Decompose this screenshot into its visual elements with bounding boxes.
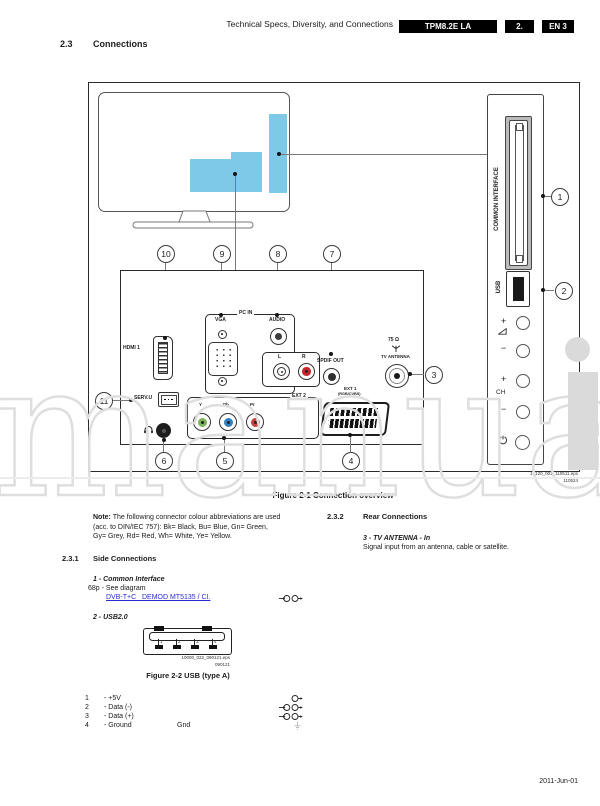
vga-label: VGA: [215, 318, 226, 323]
antenna-item-title: 3 - TV ANTENNA - In: [363, 535, 430, 542]
sec232-title: Rear Connections: [363, 513, 427, 521]
ground-icon: [293, 721, 302, 730]
antenna-icon: [391, 345, 401, 353]
pr-jack: [246, 413, 264, 431]
pin-desc: - Data (-): [104, 704, 132, 711]
scart-connector: [320, 402, 390, 436]
volume-minus-label: −: [501, 344, 506, 353]
manual-page: Technical Specs, Diversity, and Connecti…: [0, 0, 600, 806]
channel-down-button[interactable]: [516, 405, 530, 419]
section-title: Connections: [93, 40, 148, 49]
common-interface-item-text: 68p - See diagram: [88, 585, 146, 592]
common-interface-label: COMMON INTERFACE: [494, 139, 500, 259]
io-in-icon: [279, 594, 291, 603]
usb-tab: [202, 626, 212, 631]
callout-6: 6: [155, 452, 173, 470]
sec231-title: Side Connections: [93, 555, 156, 563]
note-text3: Gy= Grey, Rd= Red, Wh= White, Ye= Yellow…: [93, 532, 328, 542]
header-badge-model: TPM8.2E LA: [399, 20, 497, 33]
antenna-item-text: Signal input from an antenna, cable or s…: [363, 544, 509, 551]
callout-1: 1: [551, 188, 569, 206]
channel-up-button[interactable]: [516, 374, 530, 388]
pin-desc: - Ground: [104, 722, 132, 729]
callout-2: 2: [555, 282, 573, 300]
io-out-icon: [291, 594, 303, 603]
volume-down-button[interactable]: [516, 344, 530, 358]
callout-9: 9: [213, 245, 231, 263]
serv-label: SERV.U: [134, 396, 152, 401]
common-interface-item-title: 1 - Common Interface: [93, 576, 165, 583]
pin-desc: - +5V: [104, 695, 121, 702]
fig2-eps-ref: 10000_022_090121.eps: [181, 656, 230, 661]
pin-num: 4: [85, 722, 89, 729]
audio-label: AUDIO: [269, 318, 285, 323]
io-out-icon: [291, 694, 303, 703]
spdif-label: SPDIF OUT: [317, 359, 344, 364]
antenna-ohm-label: 75 Ω: [388, 338, 399, 343]
pin-desc: - Data (+): [104, 713, 134, 720]
header-title: Technical Specs, Diversity, and Connecti…: [160, 20, 393, 29]
tv-stand: [130, 210, 256, 231]
io-out-icon: [291, 703, 303, 712]
hdmi-label: HDMI 1: [123, 346, 140, 351]
usb2-item-title: 2 - USB2.0: [93, 614, 128, 621]
pb-jack: [219, 413, 237, 431]
usb-pin-number: 3: [196, 640, 199, 645]
power-button[interactable]: [515, 435, 530, 450]
usb-pin-number: 4: [214, 640, 217, 645]
usb-pin-number: 1: [160, 640, 163, 645]
channel-label: CH: [496, 390, 505, 397]
io-in-icon: [279, 703, 291, 712]
pr-label: Pr: [250, 403, 255, 408]
header-badge-page: EN 3: [542, 20, 574, 33]
usb-pin-number: 2: [178, 640, 181, 645]
pc-in-label: PC IN: [237, 311, 254, 316]
note-label: Note:: [93, 514, 111, 521]
sec231-number: 2.3.1: [62, 555, 79, 563]
audio-l-jack: [273, 363, 290, 380]
pin-num: 3: [85, 713, 89, 720]
audio-r-jack: [298, 363, 315, 380]
ci-slot: [505, 116, 532, 270]
fig2-caption: Figure 2-2 USB (type A): [103, 671, 273, 680]
tv-antenna-jack: [385, 364, 409, 388]
footer-date: 2011-Jun-01: [539, 778, 578, 785]
highlight-bottom-connectors-a: [190, 159, 231, 192]
audio-l-label: L: [278, 355, 281, 360]
y-jack: [193, 413, 211, 431]
pin-extra: Gnd: [177, 722, 190, 729]
pin-num: 1: [85, 695, 89, 702]
y-label: Y: [199, 403, 202, 408]
channel-plus-label: +: [501, 375, 506, 384]
usb-port: [506, 271, 530, 307]
usb-type-a-drawing: 1 2 3 4: [143, 628, 230, 654]
fig1-eps-ref: 19120_001_110511.eps: [530, 472, 578, 477]
volume-plus-label: +: [501, 317, 506, 326]
spdif-jack: [323, 368, 340, 385]
callout-7: 7: [323, 245, 341, 263]
volume-icon: [498, 328, 507, 335]
audio-r-label: R: [302, 355, 306, 360]
io-out-icon: [291, 712, 303, 721]
callout-11: 11: [95, 392, 113, 410]
pin-num: 2: [85, 704, 89, 711]
demod-diagram-link[interactable]: DVB-T+C_ DEMOD MT5135 / CI.: [106, 594, 210, 601]
volume-up-button[interactable]: [516, 316, 530, 330]
pb-label: Pb: [223, 403, 229, 408]
usb-tab: [154, 626, 164, 631]
hdmi-connector: [153, 336, 173, 380]
callout-5: 5: [216, 452, 234, 470]
watermark-baseline: [0, 477, 600, 479]
header-badge-chapter: 2.: [505, 20, 534, 33]
io-in-icon: [279, 712, 291, 721]
sec232-number: 2.3.2: [327, 513, 344, 521]
callout-8: 8: [269, 245, 287, 263]
vga-connector: [208, 342, 238, 376]
fig1-caption: Figure 2-1 Connection overview: [88, 491, 578, 500]
ext2-label: EXT 2: [290, 394, 308, 399]
headphone-icon: [143, 424, 154, 435]
serv-connector: [158, 392, 179, 407]
usb-label: USB: [496, 277, 502, 297]
ext1-label: EXT 1: [344, 387, 357, 392]
note-text2: (acc. to DIN/IEC 757): Bk= Black, Bu= Bl…: [93, 523, 328, 533]
section-number: 2.3: [60, 40, 73, 49]
tv-antenna-label: TV ANTENNA: [381, 355, 410, 360]
power-icon: [498, 435, 508, 445]
channel-minus-label: −: [501, 405, 506, 414]
headphone-jack: [156, 423, 171, 438]
fig1-eps-date: 110524: [563, 479, 578, 484]
callout-3: 3: [425, 366, 443, 384]
note-text1: The following connector colour abbreviat…: [111, 514, 281, 521]
callout-4: 4: [342, 452, 360, 470]
audio-jack: [270, 328, 287, 345]
ext1-sub-label: (RGB/CVBS): [338, 393, 361, 397]
note-paragraph: Note: The following connector colour abb…: [93, 513, 328, 542]
callout-10: 10: [157, 245, 175, 263]
fig2-eps-date: 090121: [215, 663, 230, 668]
